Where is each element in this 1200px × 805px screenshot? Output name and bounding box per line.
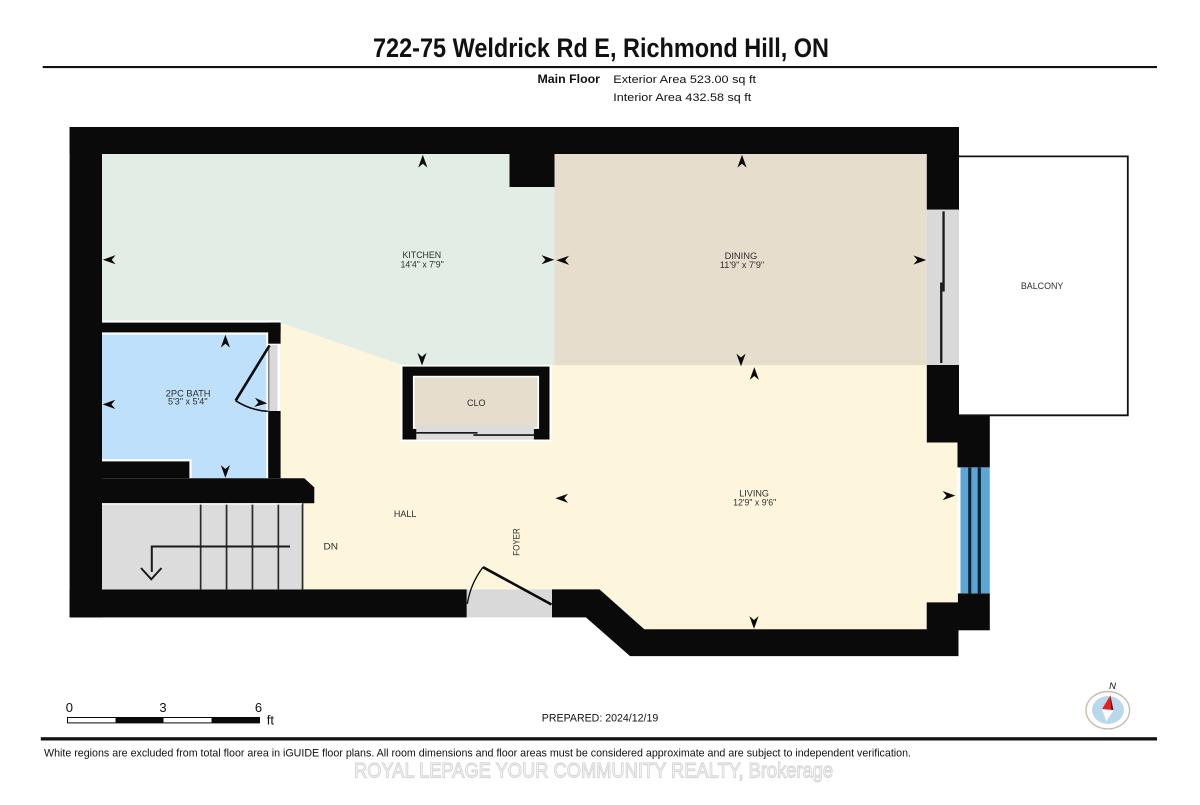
svg-text:N: N: [1109, 681, 1116, 692]
svg-text:DN: DN: [324, 541, 339, 552]
svg-text:5'3" x 5'4": 5'3" x 5'4": [168, 397, 208, 407]
svg-text:CLO: CLO: [467, 398, 486, 408]
svg-text:ROYAL LEPAGE YOUR COMMUNITY RE: ROYAL LEPAGE YOUR COMMUNITY REALTY, Brok…: [354, 759, 833, 783]
svg-text:FOYER: FOYER: [512, 528, 522, 556]
svg-text:6: 6: [255, 700, 262, 715]
svg-text:ft: ft: [267, 713, 275, 728]
svg-text:Exterior Area 523.00 sq ft: Exterior Area 523.00 sq ft: [613, 74, 756, 86]
svg-text:12'9" x 9'6": 12'9" x 9'6": [733, 498, 776, 508]
svg-text:11'9" x 7'9": 11'9" x 7'9": [720, 260, 764, 270]
svg-text:Interior Area 432.58 sq ft: Interior Area 432.58 sq ft: [613, 92, 751, 104]
svg-text:BALCONY: BALCONY: [1021, 281, 1063, 291]
svg-text:HALL: HALL: [394, 509, 417, 519]
svg-text:White regions are excluded fro: White regions are excluded from total fl…: [44, 747, 911, 759]
svg-text:PREPARED: 2024/12/19: PREPARED: 2024/12/19: [542, 713, 659, 725]
svg-text:3: 3: [159, 700, 166, 715]
svg-text:0: 0: [66, 700, 73, 715]
svg-text:Main Floor: Main Floor: [538, 74, 601, 86]
svg-text:722-75 Weldrick Rd E, Richmond: 722-75 Weldrick Rd E, Richmond Hill, ON: [373, 33, 829, 63]
svg-text:14'4" x 7'9": 14'4" x 7'9": [401, 259, 444, 269]
